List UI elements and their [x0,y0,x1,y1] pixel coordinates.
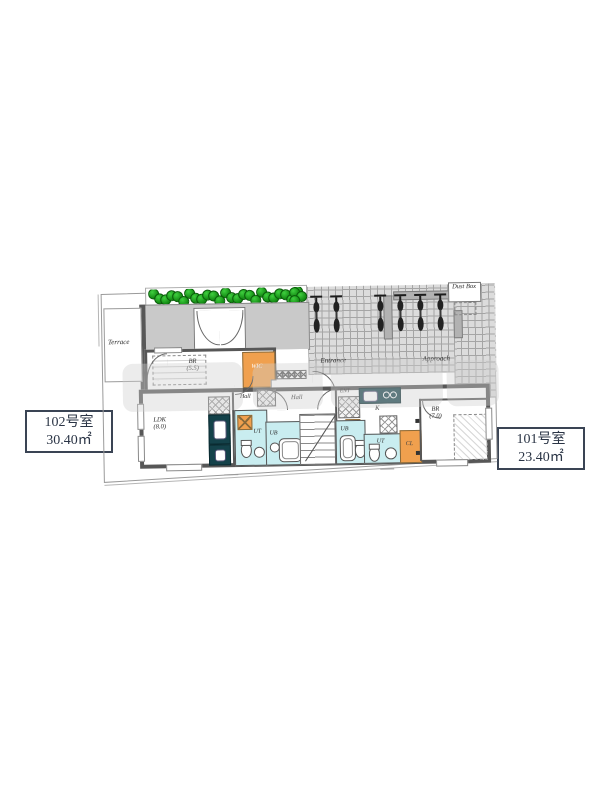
basin-101 [385,447,397,459]
unit-102-ut-label: UT [253,429,261,435]
hedge-cluster [289,287,309,302]
unit-102-ldk-label: LDK (8.0) [153,417,166,431]
bicycle-icon [373,293,388,333]
kitchen-cabinet-102 [209,444,231,465]
window [166,464,202,472]
unit-101-area: 23.40㎡ [503,449,579,467]
bicycle-icon [393,293,408,333]
upper-entry-recess [193,307,246,350]
terrace-label: Terrace [108,339,130,347]
unit-102-ub-label: UB [270,430,278,436]
bicycle-icon [413,293,428,333]
washer-pan-102 [237,415,252,430]
unit-101-room-number: 101号室 [503,431,579,449]
staircase [299,413,336,465]
bed-101 [453,414,488,461]
dust-box: Dust Box [448,282,481,303]
unit-101-ub: UB [335,420,366,465]
unit-102-ut: UT [234,410,268,467]
kitchen-counter-102 [208,414,231,444]
watermark [252,363,323,410]
unit-102-ub: UB [265,421,304,466]
watermark [122,362,243,412]
unit-101-label-box: 101号室 23.40㎡ [497,427,585,470]
watermark [330,359,443,409]
outlet-mark [416,451,420,455]
window [138,436,145,462]
toilet-102 [241,443,252,458]
bicycle-icon [309,295,324,335]
basin-102 [254,447,265,458]
washer-space-101 [379,415,397,433]
floorplan-page: 102号室 30.40㎡ 101号室 23.40㎡ Dust Box [0,0,600,800]
window [436,459,468,467]
stair-arrow [305,412,337,461]
window [485,408,493,440]
window [154,347,182,353]
toilet-101 [369,447,380,462]
unit-101-ut: UT [364,433,403,464]
unit-101-ub-label: UB [340,426,348,432]
bathtub-101 [340,435,356,461]
dust-box-pad [454,302,476,315]
bicycle-icon [433,292,448,332]
outlet-mark [415,419,419,423]
bicycle-icon [329,294,344,334]
dust-box-label: Dust Box [452,284,478,291]
watermark [446,360,499,407]
bathtub-102 [279,438,302,462]
site-plan: Dust Box Terrace Entrance Approach BR (5… [93,279,507,521]
unit-101-cl-label: CL [406,441,413,447]
